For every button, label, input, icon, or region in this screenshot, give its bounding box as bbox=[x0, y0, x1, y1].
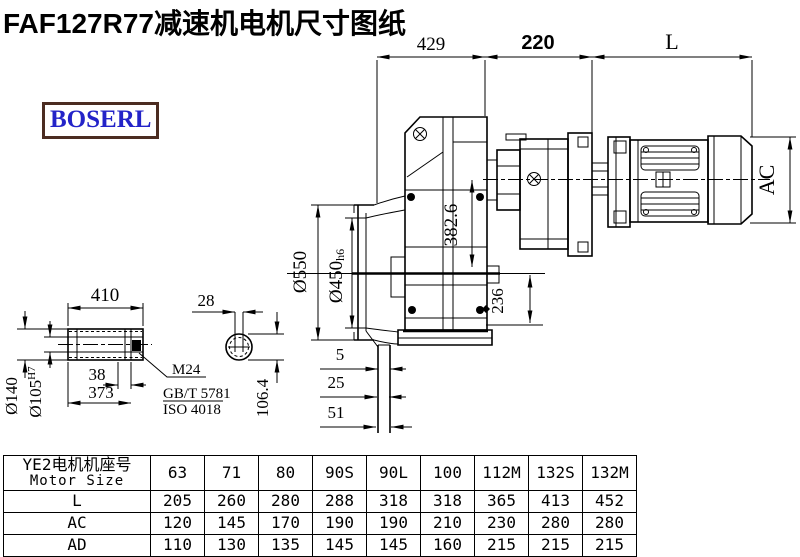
table-header-cell: 90L bbox=[367, 456, 421, 491]
table-cell: 190 bbox=[367, 513, 421, 535]
table-row-L: L 205 260 280 288 318 318 365 413 452 bbox=[4, 491, 637, 513]
dim-450h6: Ø450h6 bbox=[326, 249, 347, 303]
dim-38: 38 bbox=[89, 365, 106, 384]
dim-L: L bbox=[665, 29, 678, 54]
dim-236: 236 bbox=[488, 288, 507, 314]
dimension-550: Ø550 bbox=[290, 205, 358, 340]
dim-373: 373 bbox=[88, 383, 114, 402]
table-cell: 145 bbox=[367, 535, 421, 557]
table-cell: 215 bbox=[529, 535, 583, 557]
table-row-AC: AC 120 145 170 190 190 210 230 280 280 bbox=[4, 513, 637, 535]
table-header-cell: 80 bbox=[259, 456, 313, 491]
table-cell: 135 bbox=[259, 535, 313, 557]
bolt-icon bbox=[476, 306, 484, 314]
table-cell: 280 bbox=[583, 513, 637, 535]
table-header-cell: 71 bbox=[205, 456, 259, 491]
dim-28: 28 bbox=[198, 291, 215, 310]
thread-spec: M24 bbox=[172, 362, 201, 378]
dim-410: 410 bbox=[91, 285, 120, 306]
dim-105H7: Ø105H7 bbox=[26, 366, 45, 418]
table-header-cell: 132S bbox=[529, 456, 583, 491]
dim-220: 220 bbox=[521, 32, 554, 54]
table-header-cell: 112M bbox=[475, 456, 529, 491]
table-cell: 145 bbox=[205, 513, 259, 535]
table-header-en: Motor Size bbox=[4, 474, 150, 489]
dimension-382-6: 382.6 bbox=[441, 180, 472, 267]
bolt-icon bbox=[408, 306, 416, 314]
dim-5: 5 bbox=[336, 345, 345, 364]
dimension-AC: AC bbox=[750, 137, 796, 223]
table-cell: 120 bbox=[151, 513, 205, 535]
dim-382-6: 382.6 bbox=[441, 204, 462, 247]
dim-25: 25 bbox=[328, 373, 345, 392]
technical-drawing: 429 220 L bbox=[0, 0, 800, 460]
table-header-row: YE2电机机座号 Motor Size 63 71 80 90S 90L 100… bbox=[4, 456, 637, 491]
dim-550: Ø550 bbox=[290, 251, 311, 293]
dim-AC: AC bbox=[754, 165, 779, 196]
table-cell: 452 bbox=[583, 491, 637, 513]
row-label: L bbox=[4, 491, 151, 513]
table-cell: 280 bbox=[259, 491, 313, 513]
standard-gb: GB/T 5781 bbox=[163, 386, 231, 402]
input-stage bbox=[487, 133, 608, 256]
table-cell: 280 bbox=[529, 513, 583, 535]
motor-size-table: YE2电机机座号 Motor Size 63 71 80 90S 90L 100… bbox=[3, 455, 637, 557]
table-header-cell: 132M bbox=[583, 456, 637, 491]
mounting-plate bbox=[366, 331, 390, 433]
drawing-sheet: FAF127R77减速机电机尺寸图纸 BOSERL 429 220 L bbox=[0, 0, 800, 557]
table-cell: 145 bbox=[313, 535, 367, 557]
table-cell: 170 bbox=[259, 513, 313, 535]
table-cell: 318 bbox=[421, 491, 475, 513]
table-cell: 288 bbox=[313, 491, 367, 513]
table-cell: 365 bbox=[475, 491, 529, 513]
table-cell: 318 bbox=[367, 491, 421, 513]
table-cell: 130 bbox=[205, 535, 259, 557]
table-cell: 413 bbox=[529, 491, 583, 513]
table-cell: 215 bbox=[475, 535, 529, 557]
row-label: AD bbox=[4, 535, 151, 557]
table-header-cell: 63 bbox=[151, 456, 205, 491]
table-cell: 110 bbox=[151, 535, 205, 557]
table-cell: 160 bbox=[421, 535, 475, 557]
table-header-motor-size: YE2电机机座号 Motor Size bbox=[4, 456, 151, 491]
table-cell: 260 bbox=[205, 491, 259, 513]
table-cell: 205 bbox=[151, 491, 205, 513]
dim-140: Ø140 bbox=[2, 377, 21, 415]
hollow-shaft-detail: 410 Ø140 Ø105H7 38 373 M24 bbox=[2, 285, 231, 418]
bolt-icon bbox=[476, 193, 484, 201]
table-header-cn: YE2电机机座号 bbox=[4, 457, 150, 474]
table-header-cell: 90S bbox=[313, 456, 367, 491]
dim-429: 429 bbox=[417, 34, 446, 55]
table-header-cell: 100 bbox=[421, 456, 475, 491]
table-cell: 230 bbox=[475, 513, 529, 535]
dim-106-4: 106.4 bbox=[253, 378, 272, 417]
dim-51: 51 bbox=[328, 403, 345, 422]
motor bbox=[483, 136, 770, 227]
table-cell: 210 bbox=[421, 513, 475, 535]
row-label: AC bbox=[4, 513, 151, 535]
table-row-AD: AD 110 130 135 145 145 160 215 215 215 bbox=[4, 535, 637, 557]
bolt-icon bbox=[407, 193, 415, 201]
table-cell: 215 bbox=[583, 535, 637, 557]
dimension-offsets: 5 25 51 bbox=[320, 345, 412, 427]
top-dimension-chain: 429 220 L bbox=[377, 29, 752, 203]
bolt-icon bbox=[414, 128, 427, 141]
standard-iso: ISO 4018 bbox=[163, 402, 221, 418]
table-cell: 190 bbox=[313, 513, 367, 535]
